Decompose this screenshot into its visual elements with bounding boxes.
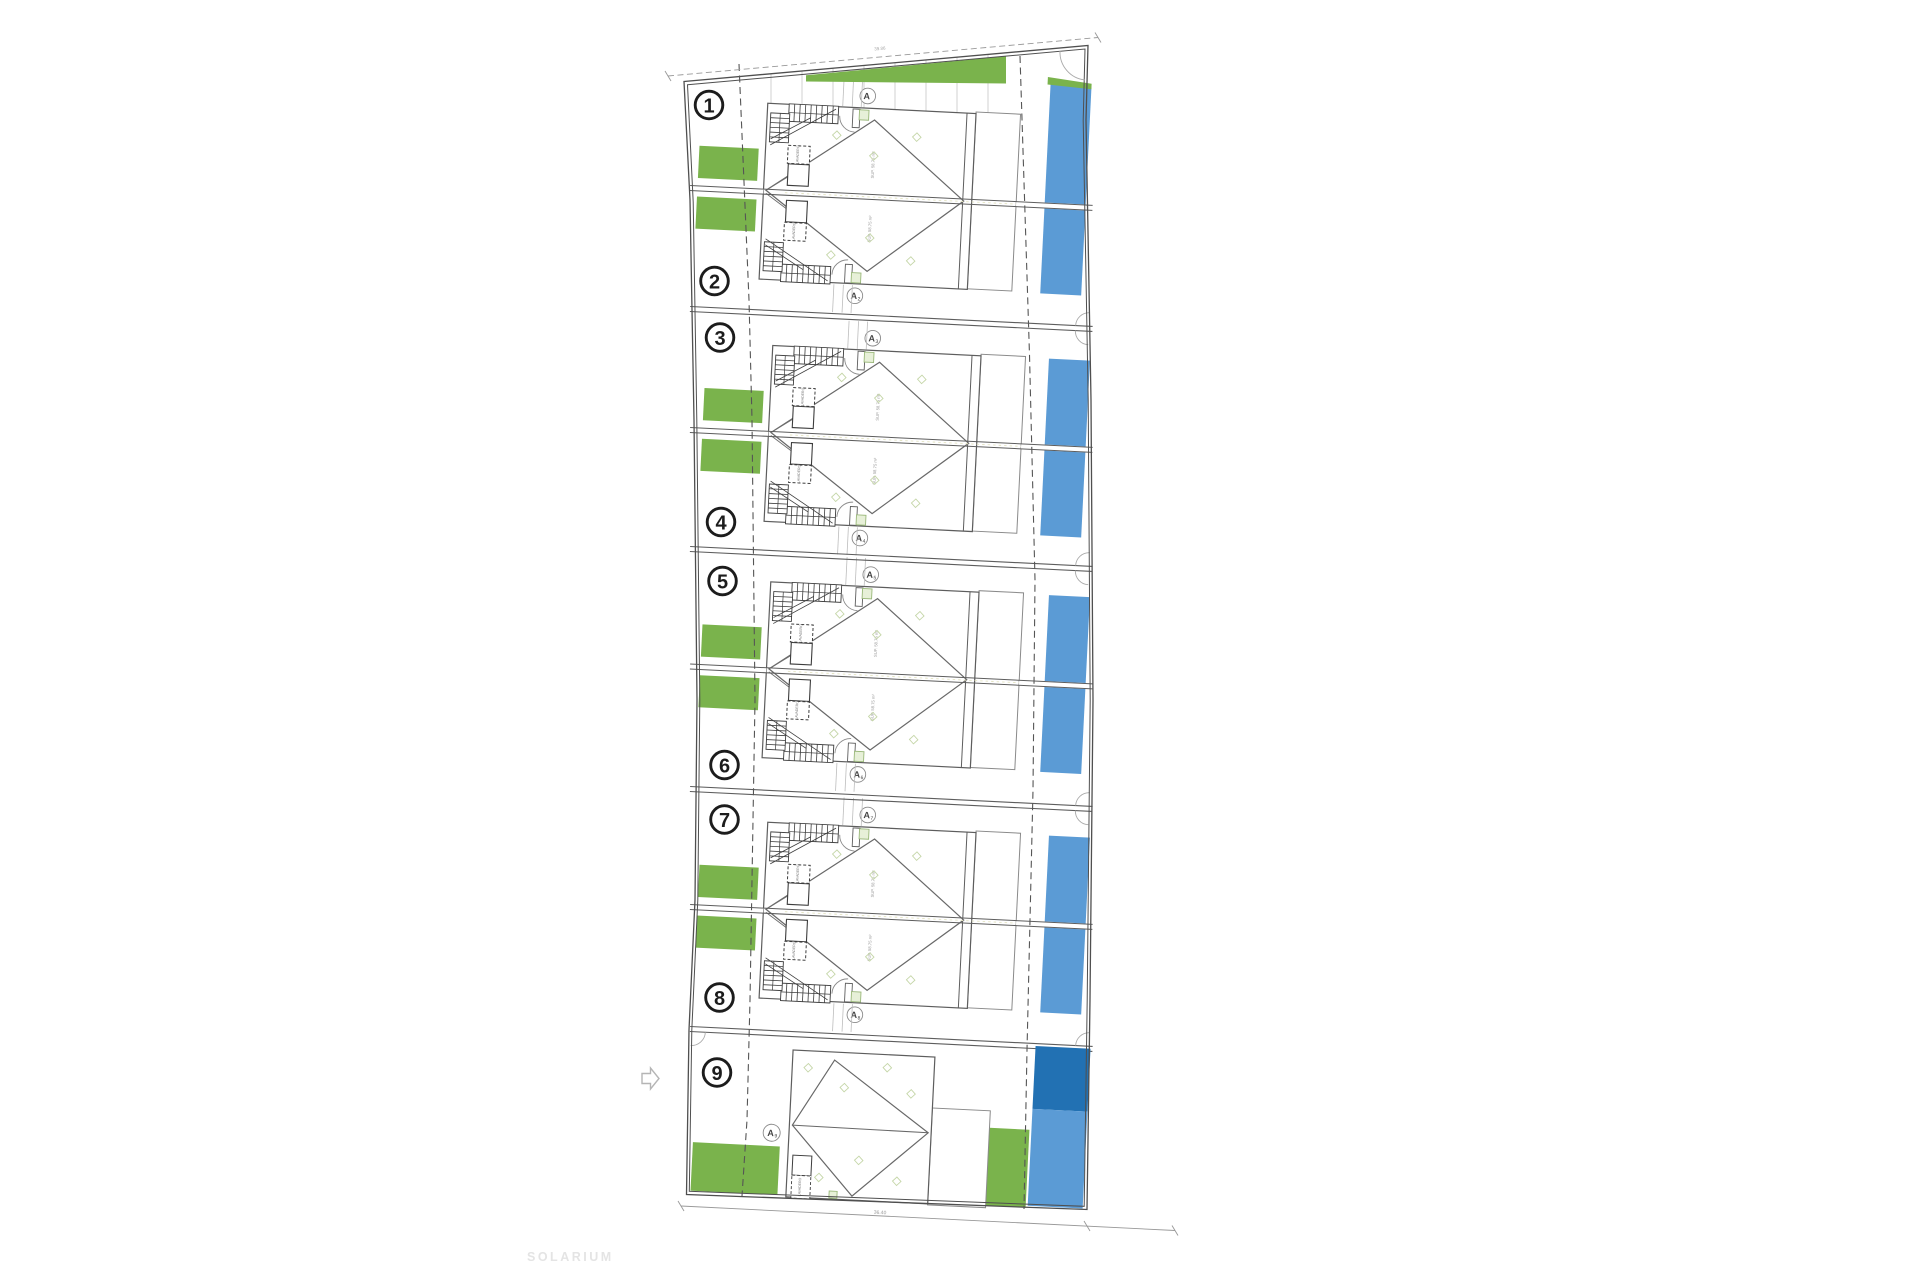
svg-text:39.86: 39.86 bbox=[874, 45, 886, 51]
svg-text:3: 3 bbox=[875, 339, 878, 345]
svg-text:8: 8 bbox=[857, 1015, 860, 1021]
svg-text:3: 3 bbox=[714, 328, 725, 350]
svg-text:6: 6 bbox=[860, 775, 863, 781]
svg-text:2: 2 bbox=[709, 272, 720, 294]
svg-text:6: 6 bbox=[719, 756, 730, 778]
svg-text:4: 4 bbox=[862, 539, 865, 545]
svg-text:9: 9 bbox=[711, 1063, 722, 1085]
svg-text:SOLARIUM: SOLARIUM bbox=[527, 1250, 614, 1264]
svg-text:5: 5 bbox=[717, 572, 728, 594]
svg-text:36.40: 36.40 bbox=[874, 1210, 887, 1217]
svg-text:8: 8 bbox=[714, 988, 725, 1010]
svg-text:9: 9 bbox=[774, 1133, 777, 1139]
svg-text:7: 7 bbox=[719, 810, 730, 832]
svg-text:A: A bbox=[863, 91, 870, 101]
svg-text:7: 7 bbox=[870, 816, 873, 822]
svg-text:2: 2 bbox=[857, 296, 860, 302]
svg-text:1: 1 bbox=[703, 96, 714, 118]
svg-text:4: 4 bbox=[715, 513, 727, 535]
svg-text:5: 5 bbox=[873, 575, 876, 581]
